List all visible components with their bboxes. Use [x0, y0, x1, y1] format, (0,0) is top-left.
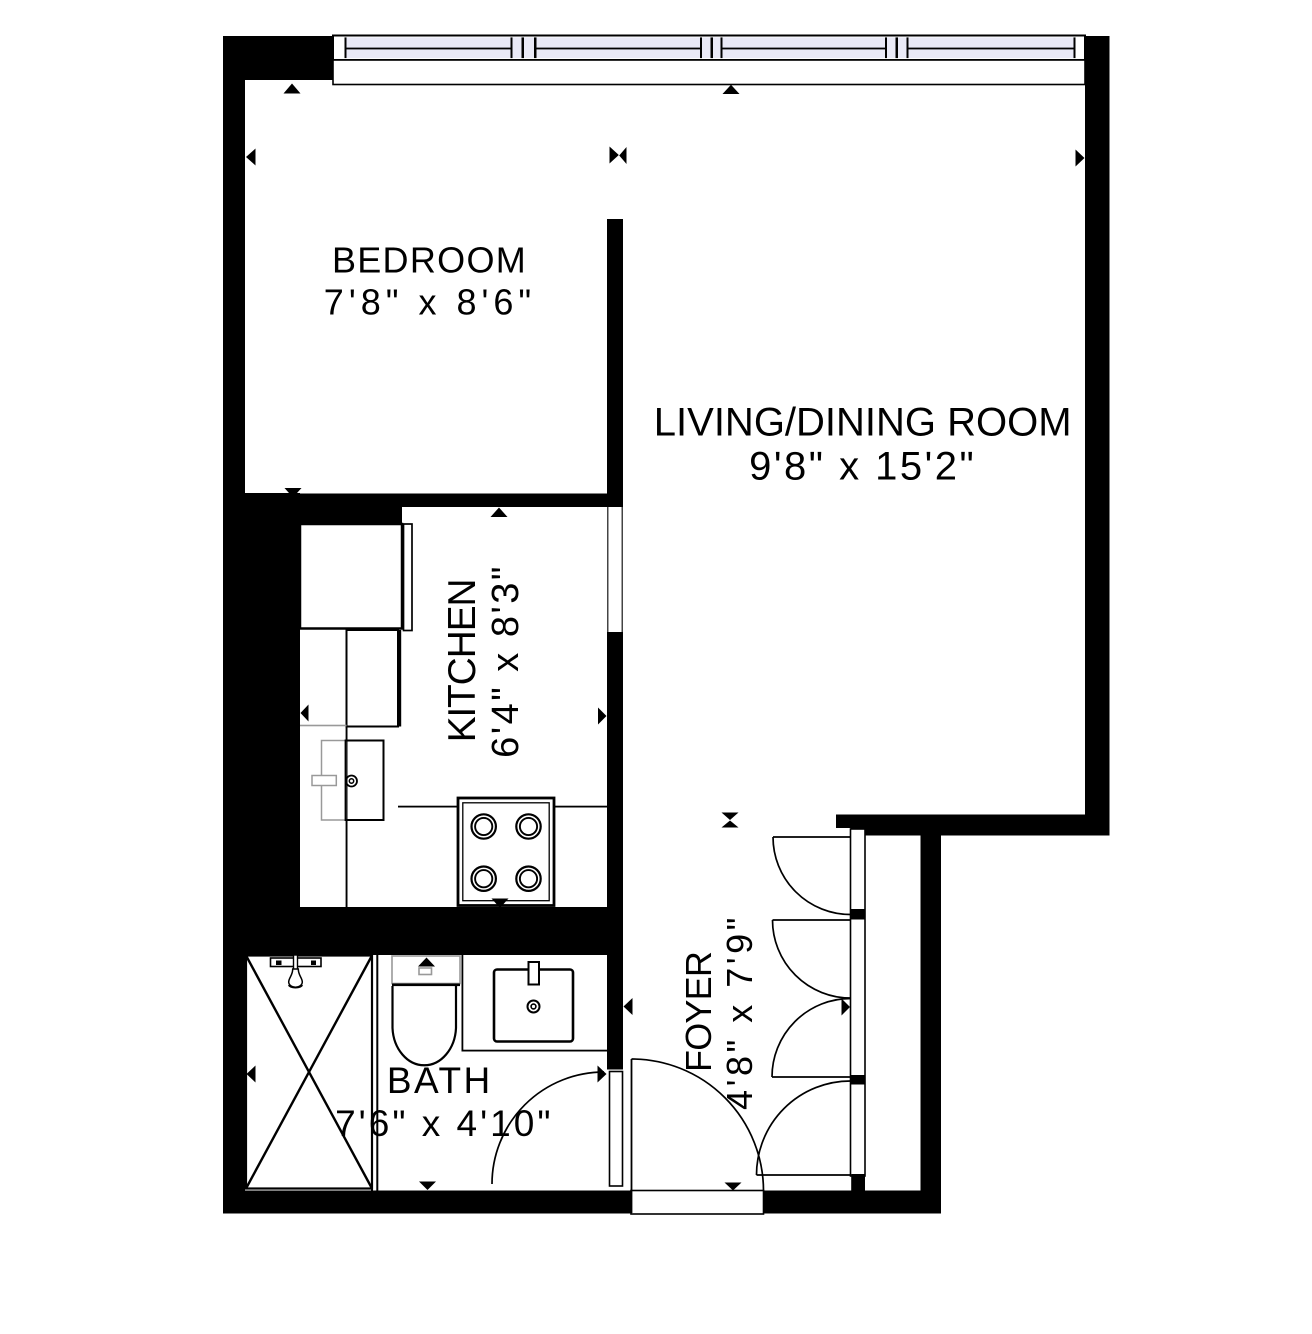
svg-text:6'4" x 8'3": 6'4" x 8'3"	[485, 564, 527, 758]
svg-text:BATH: BATH	[387, 1060, 493, 1101]
svg-text:7'8" x 8'6": 7'8" x 8'6"	[324, 282, 536, 323]
svg-text:FOYER: FOYER	[678, 952, 719, 1072]
svg-text:KITCHEN: KITCHEN	[441, 580, 484, 743]
svg-text:9'8" x 15'2": 9'8" x 15'2"	[749, 445, 976, 489]
svg-text:4'8" x 7'9": 4'8" x 7'9"	[719, 914, 760, 1110]
svg-text:BEDROOM: BEDROOM	[332, 240, 527, 281]
svg-text:LIVING/DINING ROOM: LIVING/DINING ROOM	[654, 401, 1072, 445]
